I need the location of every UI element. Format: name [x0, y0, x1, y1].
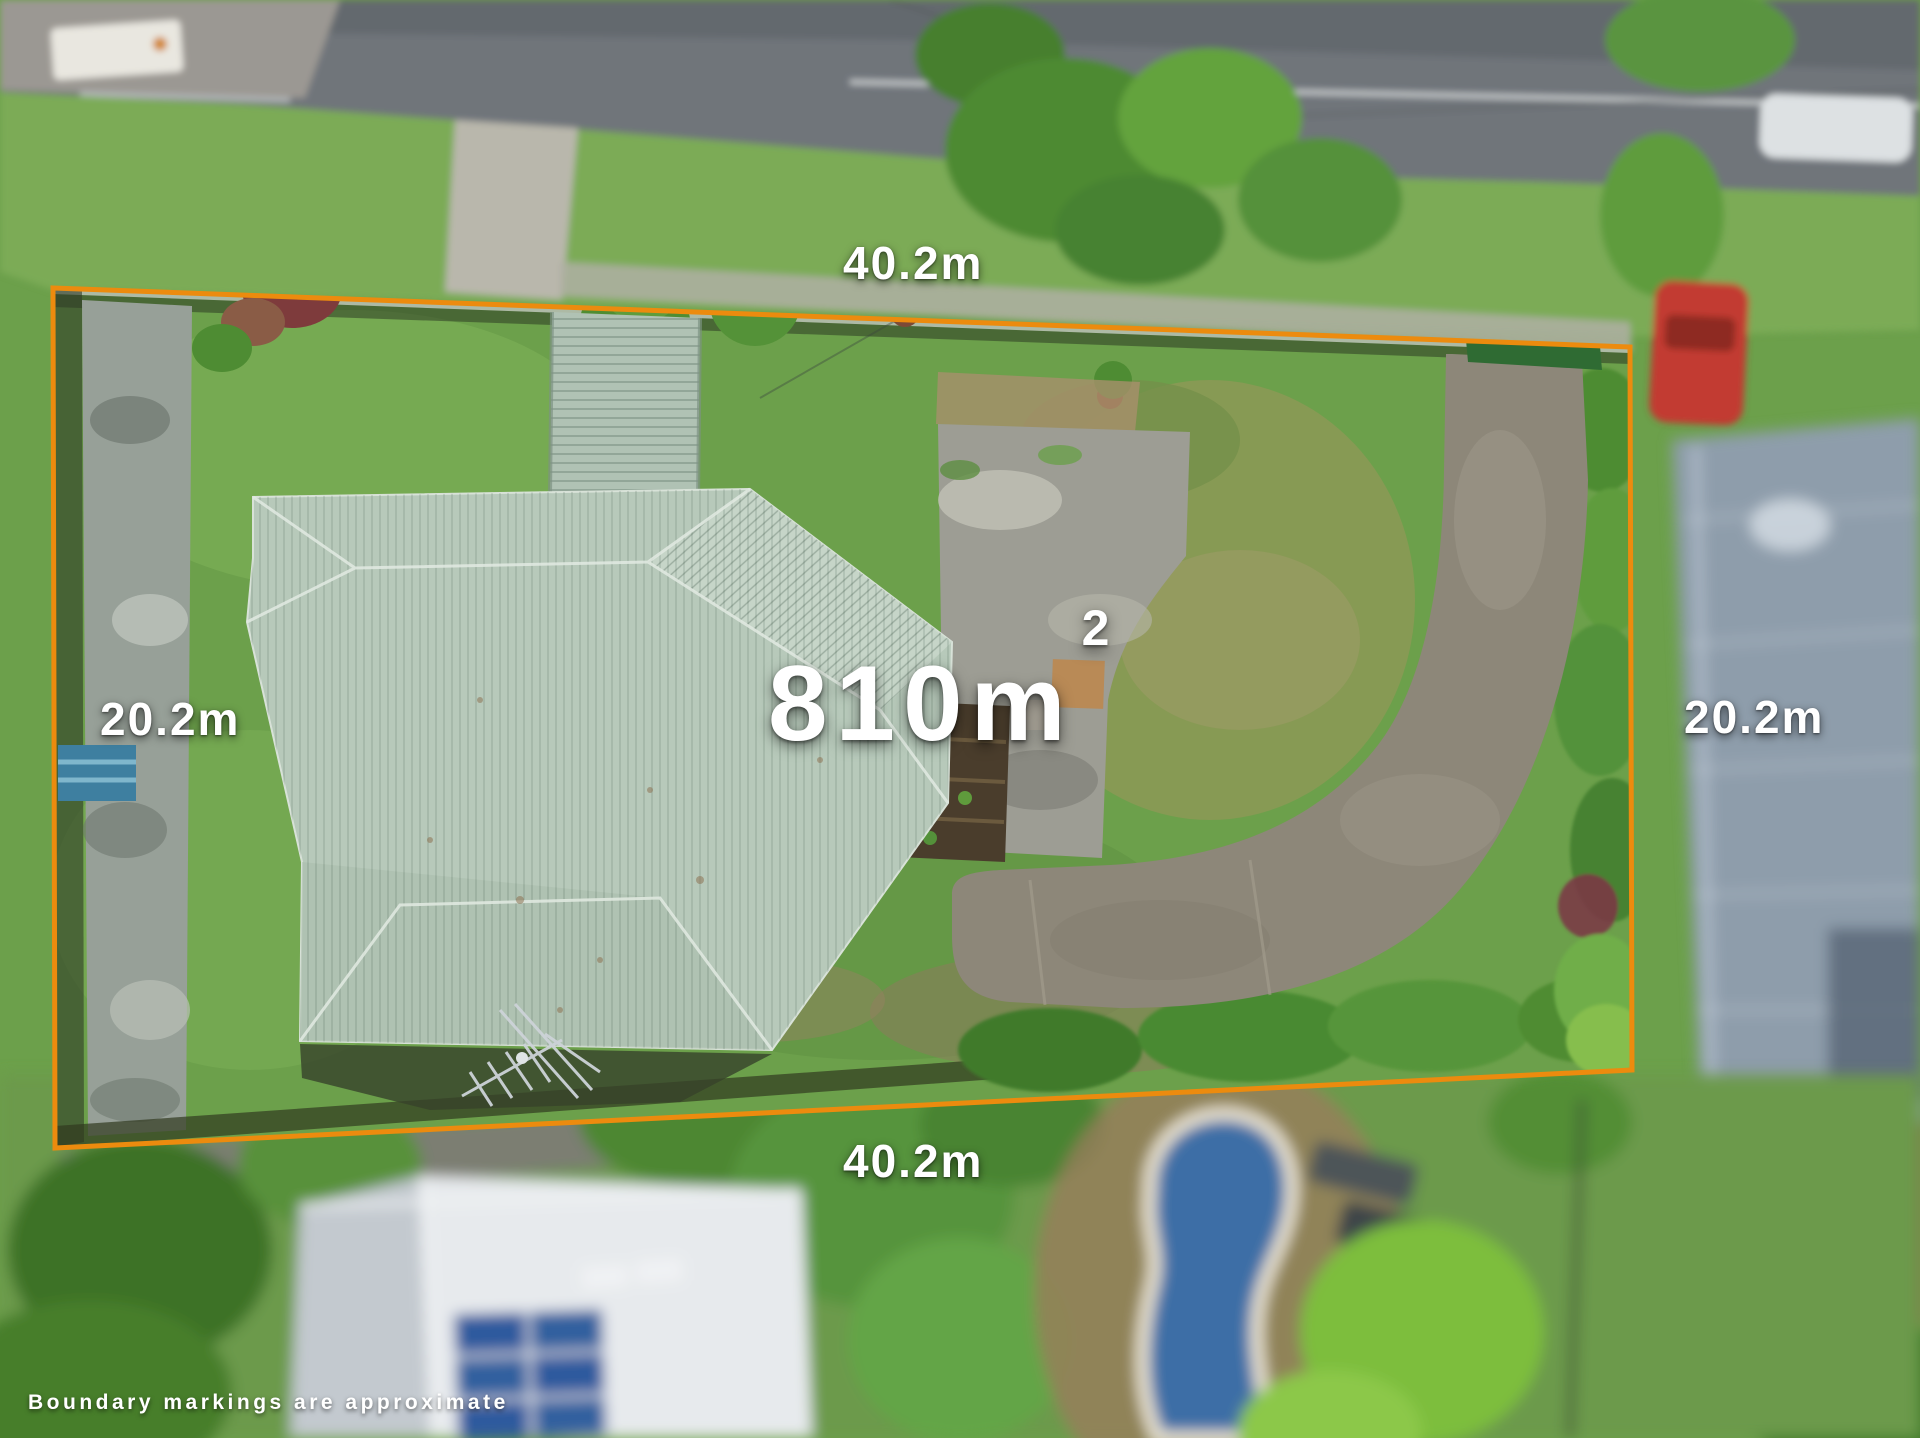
- solar-panels: [450, 1305, 612, 1438]
- dirt-strip: [936, 372, 1140, 432]
- footpath-vertical: [445, 120, 578, 300]
- aerial-photo-stage: 40.2m 20.2m 20.2m 40.2m 810m2 Boundary m…: [0, 0, 1920, 1438]
- carport-walkway: [550, 312, 700, 502]
- neighbor-dark-panel: [1828, 928, 1920, 1100]
- disclaimer-text: Boundary markings are approximate: [28, 1392, 509, 1413]
- roof-vent: [581, 1264, 628, 1289]
- neighbor-skylight: [1750, 499, 1830, 551]
- red-car: [1648, 280, 1749, 427]
- white-car: [1759, 93, 1913, 162]
- dimension-label-right: 20.2m: [1684, 694, 1824, 740]
- pool-steps-blue: [58, 745, 136, 801]
- left-fence-shadow: [53, 288, 84, 1148]
- area-superscript: 2: [1082, 600, 1110, 656]
- area-label: 810m2: [768, 650, 1101, 757]
- area-value: 810m: [768, 643, 1074, 763]
- kerb-sign: [50, 20, 183, 81]
- dimension-label-left: 20.2m: [100, 696, 240, 742]
- dimension-label-bottom: 40.2m: [843, 1138, 983, 1184]
- sign-dot: [153, 37, 167, 51]
- roof-vent: [635, 1258, 682, 1283]
- dimension-label-top: 40.2m: [843, 240, 983, 286]
